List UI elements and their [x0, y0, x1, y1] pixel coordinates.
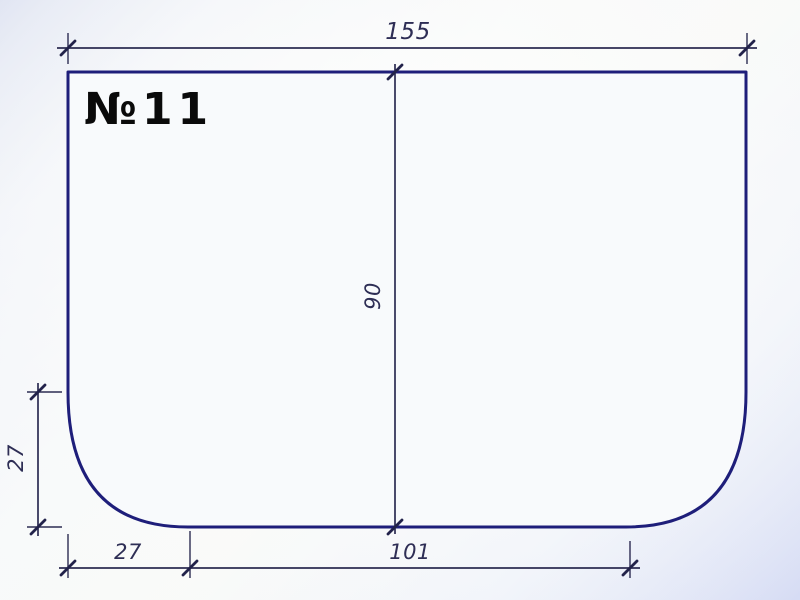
drawing-canvas: 155 90 27 27 101 — [0, 0, 800, 600]
dimension-left-corner-height: 27 — [4, 383, 62, 536]
dimension-top-width: 155 — [57, 19, 757, 64]
technical-drawing: 155 90 27 27 101 — [0, 0, 800, 600]
part-number-label: №11 — [84, 84, 213, 135]
dimension-value-27-bottom: 27 — [114, 540, 142, 564]
dimension-bottom: 27 101 — [59, 531, 640, 578]
part-outline-shape — [68, 72, 746, 527]
dimension-value-27-left: 27 — [4, 444, 28, 472]
dimension-value-90: 90 — [361, 282, 385, 310]
dimension-value-101: 101 — [389, 540, 431, 564]
dimension-value-155: 155 — [385, 19, 430, 45]
